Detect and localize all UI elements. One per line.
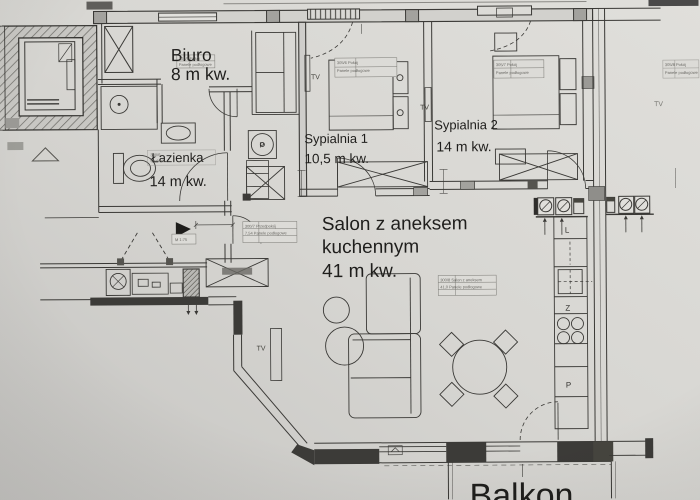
label-tv-neighbor: TV: [654, 101, 663, 108]
label-tv-sypialnia2: TV: [420, 105, 429, 112]
label-sypialnia2-area: 14 m kw.: [436, 138, 491, 154]
label-sypialnia2: Sypialnia 2: [434, 117, 498, 132]
label-tv-salon: TV: [257, 346, 266, 353]
sypialnia2-balcony-door: [478, 6, 532, 15]
floorplan-photo: { "photo": { "paper_light": "#e0dfdb", "…: [0, 0, 700, 500]
label-balkon: Balkon: [469, 477, 573, 500]
label-sypialnia1-area: 10,5 m kw.: [304, 151, 369, 166]
label-salon-2: kuchennym: [322, 237, 419, 259]
svg-text:305/7 Pokój: 305/7 Pokój: [496, 62, 517, 67]
kitchen-hatched-unit: [183, 269, 199, 297]
label-dishwasher: Z: [565, 304, 570, 313]
svg-text:M 1:75: M 1:75: [175, 237, 188, 242]
label-washer: P: [259, 141, 264, 150]
svg-text:305/5 Pokój: 305/5 Pokój: [179, 56, 200, 61]
label-appliance-p: P: [566, 381, 571, 390]
svg-text:terakota: terakota: [150, 158, 165, 163]
svg-text:Panele podłogowe: Panele podłogowe: [179, 62, 213, 67]
svg-text:Panele podłogowe: Panele podłogowe: [496, 70, 530, 75]
svg-text:Panele podłogowe: Panele podłogowe: [337, 68, 371, 73]
svg-text:Panele podłogowe: Panele podłogowe: [665, 70, 699, 75]
svg-text:300/7 Przedpokój: 300/7 Przedpokój: [245, 223, 276, 228]
svg-text:300/8 Salon z aneksem: 300/8 Salon z aneksem: [440, 277, 483, 282]
svg-text:300/6: 300/6: [150, 152, 161, 157]
label-salon-1: Salon z aneksem: [322, 213, 468, 235]
svg-text:41,0 Panele podłogowe: 41,0 Panele podłogowe: [440, 284, 483, 289]
svg-text:305/6 Pokój: 305/6 Pokój: [337, 60, 358, 65]
sypialnia1-balcony-threshold: [308, 9, 360, 19]
svg-text:305/8 Pokój: 305/8 Pokój: [665, 62, 686, 67]
label-sypialnia1: Sypialnia 1: [304, 131, 368, 146]
label-lazienka-area: 14 m kw.: [150, 174, 207, 190]
label-salon-area: 41 m kw.: [322, 261, 397, 282]
floorplan-drawing: Biuro 8 m kw. Łazienka 14 m kw. Sypialni…: [0, 0, 700, 500]
label-fridge: L: [565, 226, 570, 235]
label-tv-sypialnia1: TV: [311, 74, 320, 81]
svg-text:7,54 Panele podłogowe: 7,54 Panele podłogowe: [245, 230, 288, 235]
